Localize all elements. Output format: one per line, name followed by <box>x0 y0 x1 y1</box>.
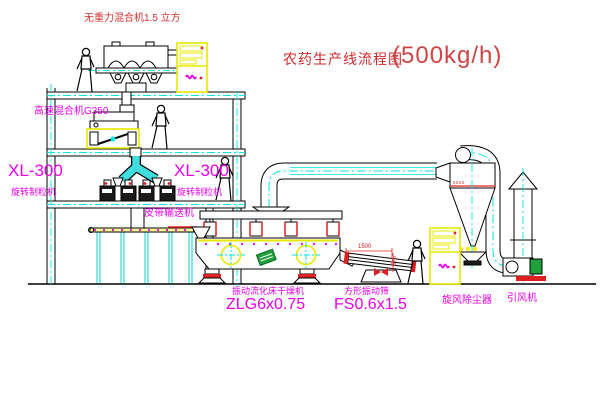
label-gravity-mixer: 无重力混合机1.5 立方 <box>84 14 181 24</box>
control-cabinet-right <box>430 228 460 284</box>
dryer-exhaust-duct <box>269 168 437 209</box>
fluid-bed-dryer-drawing <box>192 207 358 283</box>
dimension-sieve-width: 1500 <box>358 244 371 250</box>
fan-drawing <box>503 258 546 281</box>
label-high-speed-mixer: 高速混合机G350 <box>34 107 108 117</box>
discharge-chute <box>131 208 144 228</box>
label-belt-conveyor: 皮带输送机 <box>144 209 194 219</box>
label-dryer-model: ZLG6x0.75 <box>226 297 305 313</box>
y-chute <box>122 156 156 180</box>
label-dryer-name: 振动流化床干燥机 <box>232 287 304 296</box>
page-title: 农药生产线流程图 <box>283 52 403 66</box>
granulator-right-drawing <box>139 178 175 201</box>
label-sieve-name: 方形振动筛 <box>344 287 389 296</box>
control-cabinet-top <box>177 43 207 92</box>
vibrating-sieve-drawing <box>344 248 417 282</box>
worker-figure-mid <box>152 105 169 149</box>
label-granulator-left-name: 旋转制粒机 <box>11 188 56 197</box>
cad-flowchart-page: 无重力混合机1.5 立方 农药生产线流程图 (500kg/h) 高速混合机G35… <box>0 0 600 403</box>
label-sieve-model: FS0.6x1.5 <box>334 297 407 313</box>
label-granulator-right-model: XL-300 <box>174 162 229 179</box>
label-cyclone: 旋风除尘器 <box>442 296 492 306</box>
belt-conveyor-drawing <box>89 227 199 283</box>
label-fan: 引风机 <box>507 294 537 304</box>
label-granulator-right-name: 旋转制粒机 <box>177 188 222 197</box>
dimension-sieve-height: 545 <box>389 256 395 266</box>
page-title-capacity: (500kg/h) <box>392 44 502 68</box>
label-granulator-left-model: XL-300 <box>8 162 63 179</box>
granulator-left-drawing <box>100 178 136 201</box>
